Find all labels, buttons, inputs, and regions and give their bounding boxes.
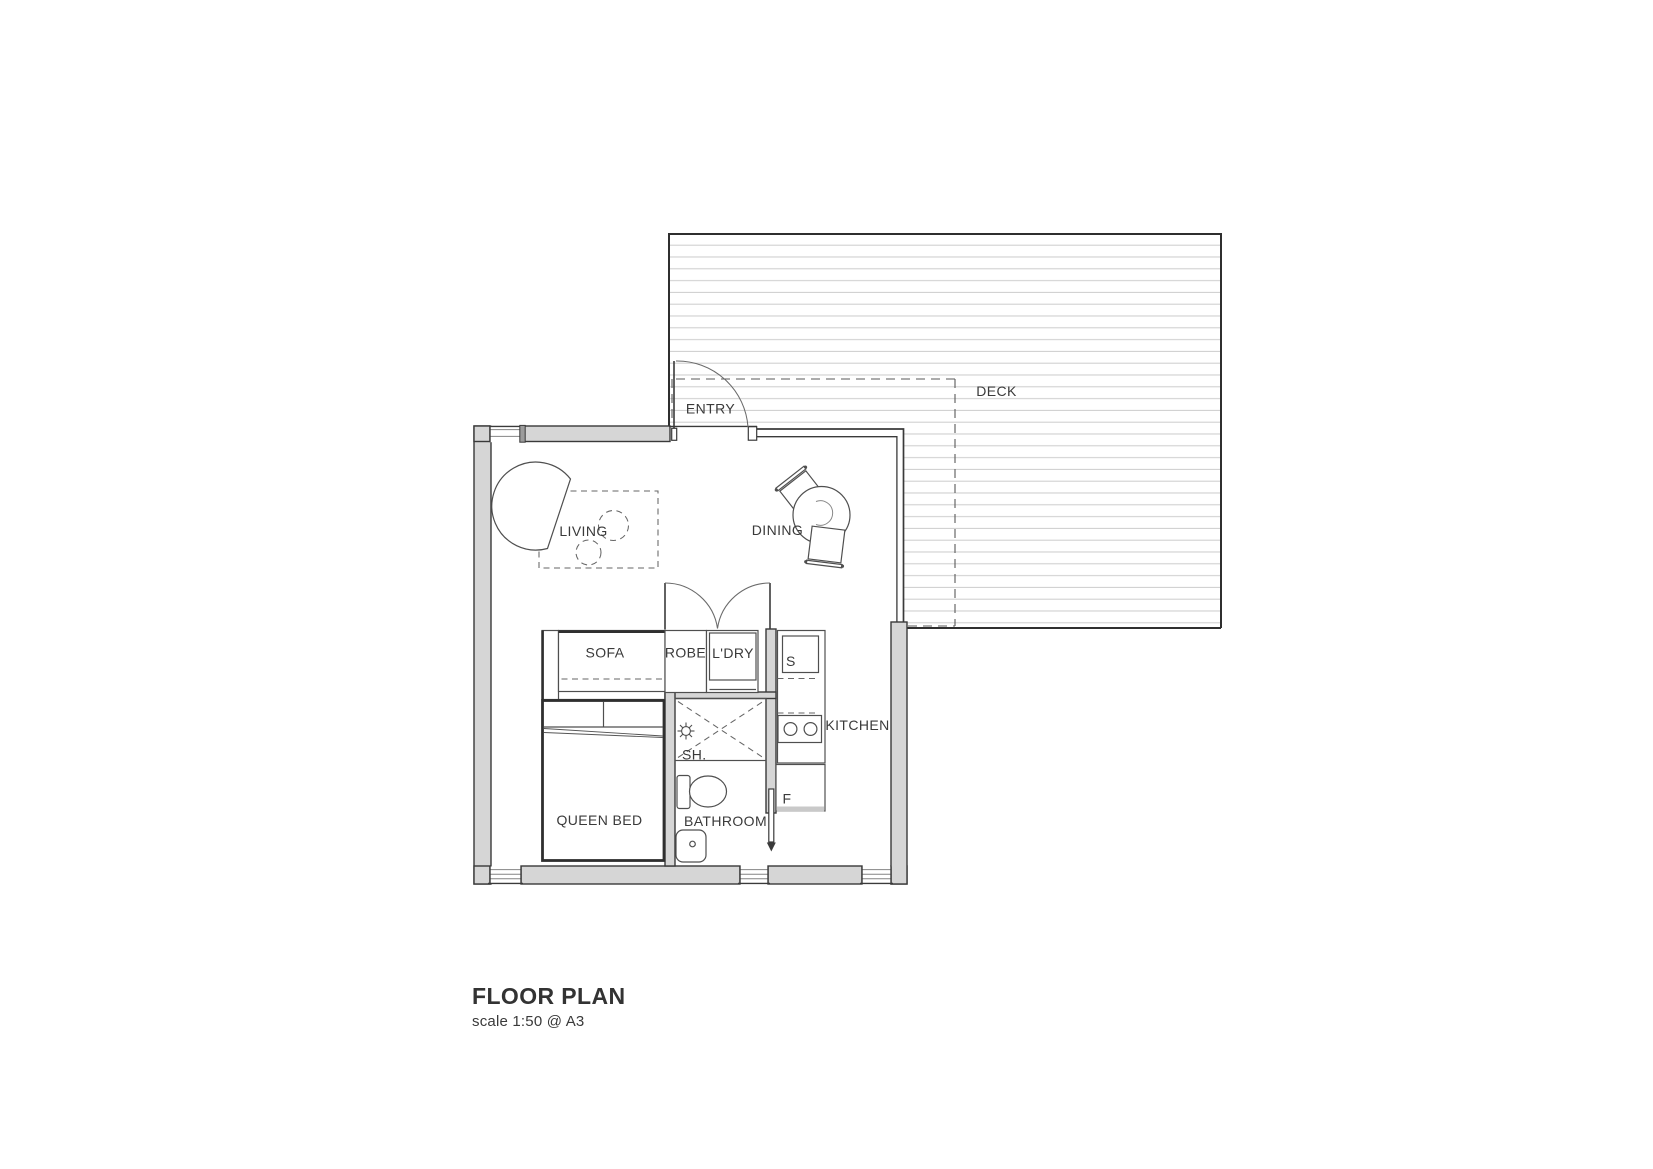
drawing-title: FLOOR PLAN [472,983,626,1010]
title-block: FLOOR PLAN scale 1:50 @ A3 [472,983,626,1030]
wall-south-c [768,866,862,884]
side-table [542,631,559,700]
wall-south-a [474,866,490,884]
fridge-label: F [783,791,792,807]
wall-kitchen-bath [766,629,776,813]
wall-south-b [521,866,740,884]
window-north [490,425,525,442]
fridge-door-shade [777,807,824,812]
wall-north [521,426,670,442]
queen-bed-label: QUEEN BED [556,812,642,828]
window-south-2 [738,867,770,884]
window-south-3 [860,867,893,884]
wall-west [474,426,491,884]
deck-label: DECK [976,383,1017,399]
dining-label: DINING [752,522,803,538]
sofa [559,631,666,692]
shower-head-icon [678,723,695,740]
bathroom-door-leaf [769,789,774,842]
sink-label: S [786,653,796,669]
basin [676,830,706,862]
wall-bath-west [665,692,675,866]
laundry-closet [707,631,759,693]
bed-area [543,701,665,861]
entry-jamb-right [748,427,756,441]
robe [665,631,707,693]
kitchen-label: KITCHEN [825,717,889,733]
entry-jamb-left [672,428,677,440]
kitchen-area [776,631,825,812]
sofa-label: SOFA [586,645,625,661]
bathroom-label: BATHROOM [684,813,767,829]
laundry-label: L'DRY [712,645,754,661]
entry-label: ENTRY [686,401,735,417]
floor-plan-page: DECK ENTRY LIVING DINING SOFA ROBE L'DRY… [0,0,1653,1169]
drawing-scale-note: scale 1:50 @ A3 [472,1013,626,1030]
kitchen-counter [778,631,826,764]
living-label: LIVING [559,523,607,539]
floor-plan-drawing: DECK ENTRY LIVING DINING SOFA ROBE L'DRY… [0,0,1653,1169]
toilet [677,776,727,809]
shower-label: SH. [682,747,707,763]
window-south-1 [488,867,523,884]
wall-north-corner [474,426,490,442]
robe-label: ROBE [665,645,706,661]
wall-east [891,622,907,884]
